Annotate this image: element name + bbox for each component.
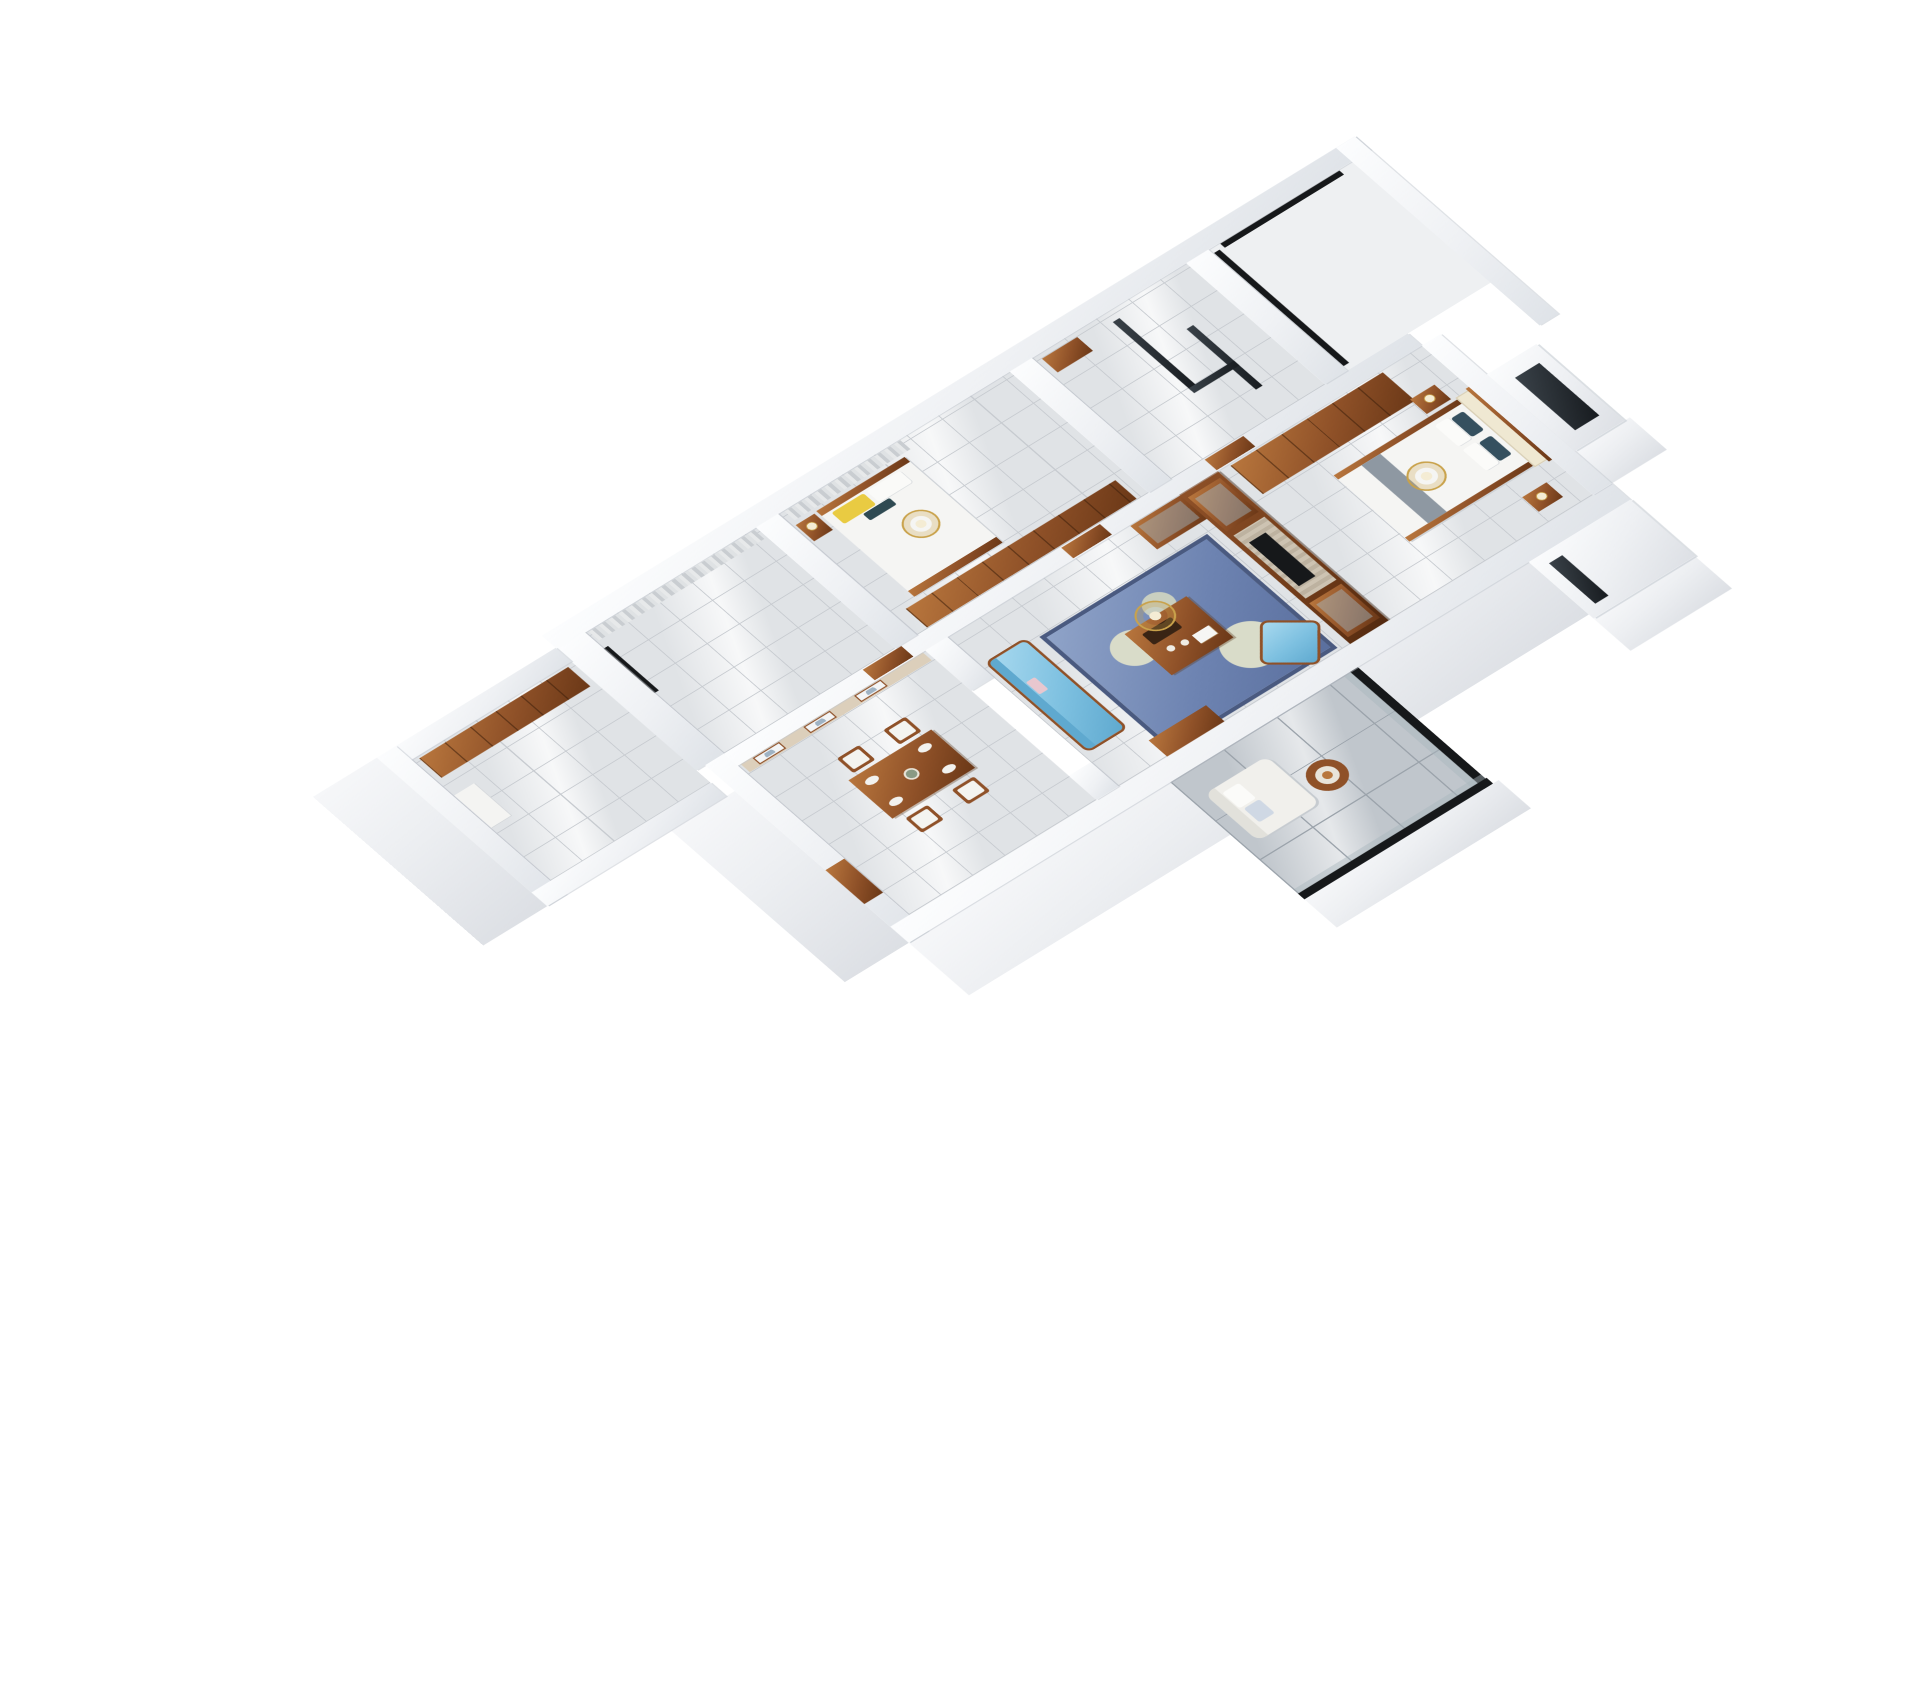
place-setting	[887, 795, 906, 808]
place-setting	[916, 741, 935, 754]
render-canvas	[0, 0, 1920, 1688]
flower-vase	[900, 766, 922, 782]
teacup	[1179, 638, 1191, 647]
book	[1192, 625, 1218, 643]
apartment-plan	[250, 64, 1920, 1347]
place-setting	[940, 762, 959, 775]
teacup	[1165, 644, 1177, 653]
place-setting	[863, 774, 882, 787]
blue-armchair	[1260, 620, 1320, 664]
